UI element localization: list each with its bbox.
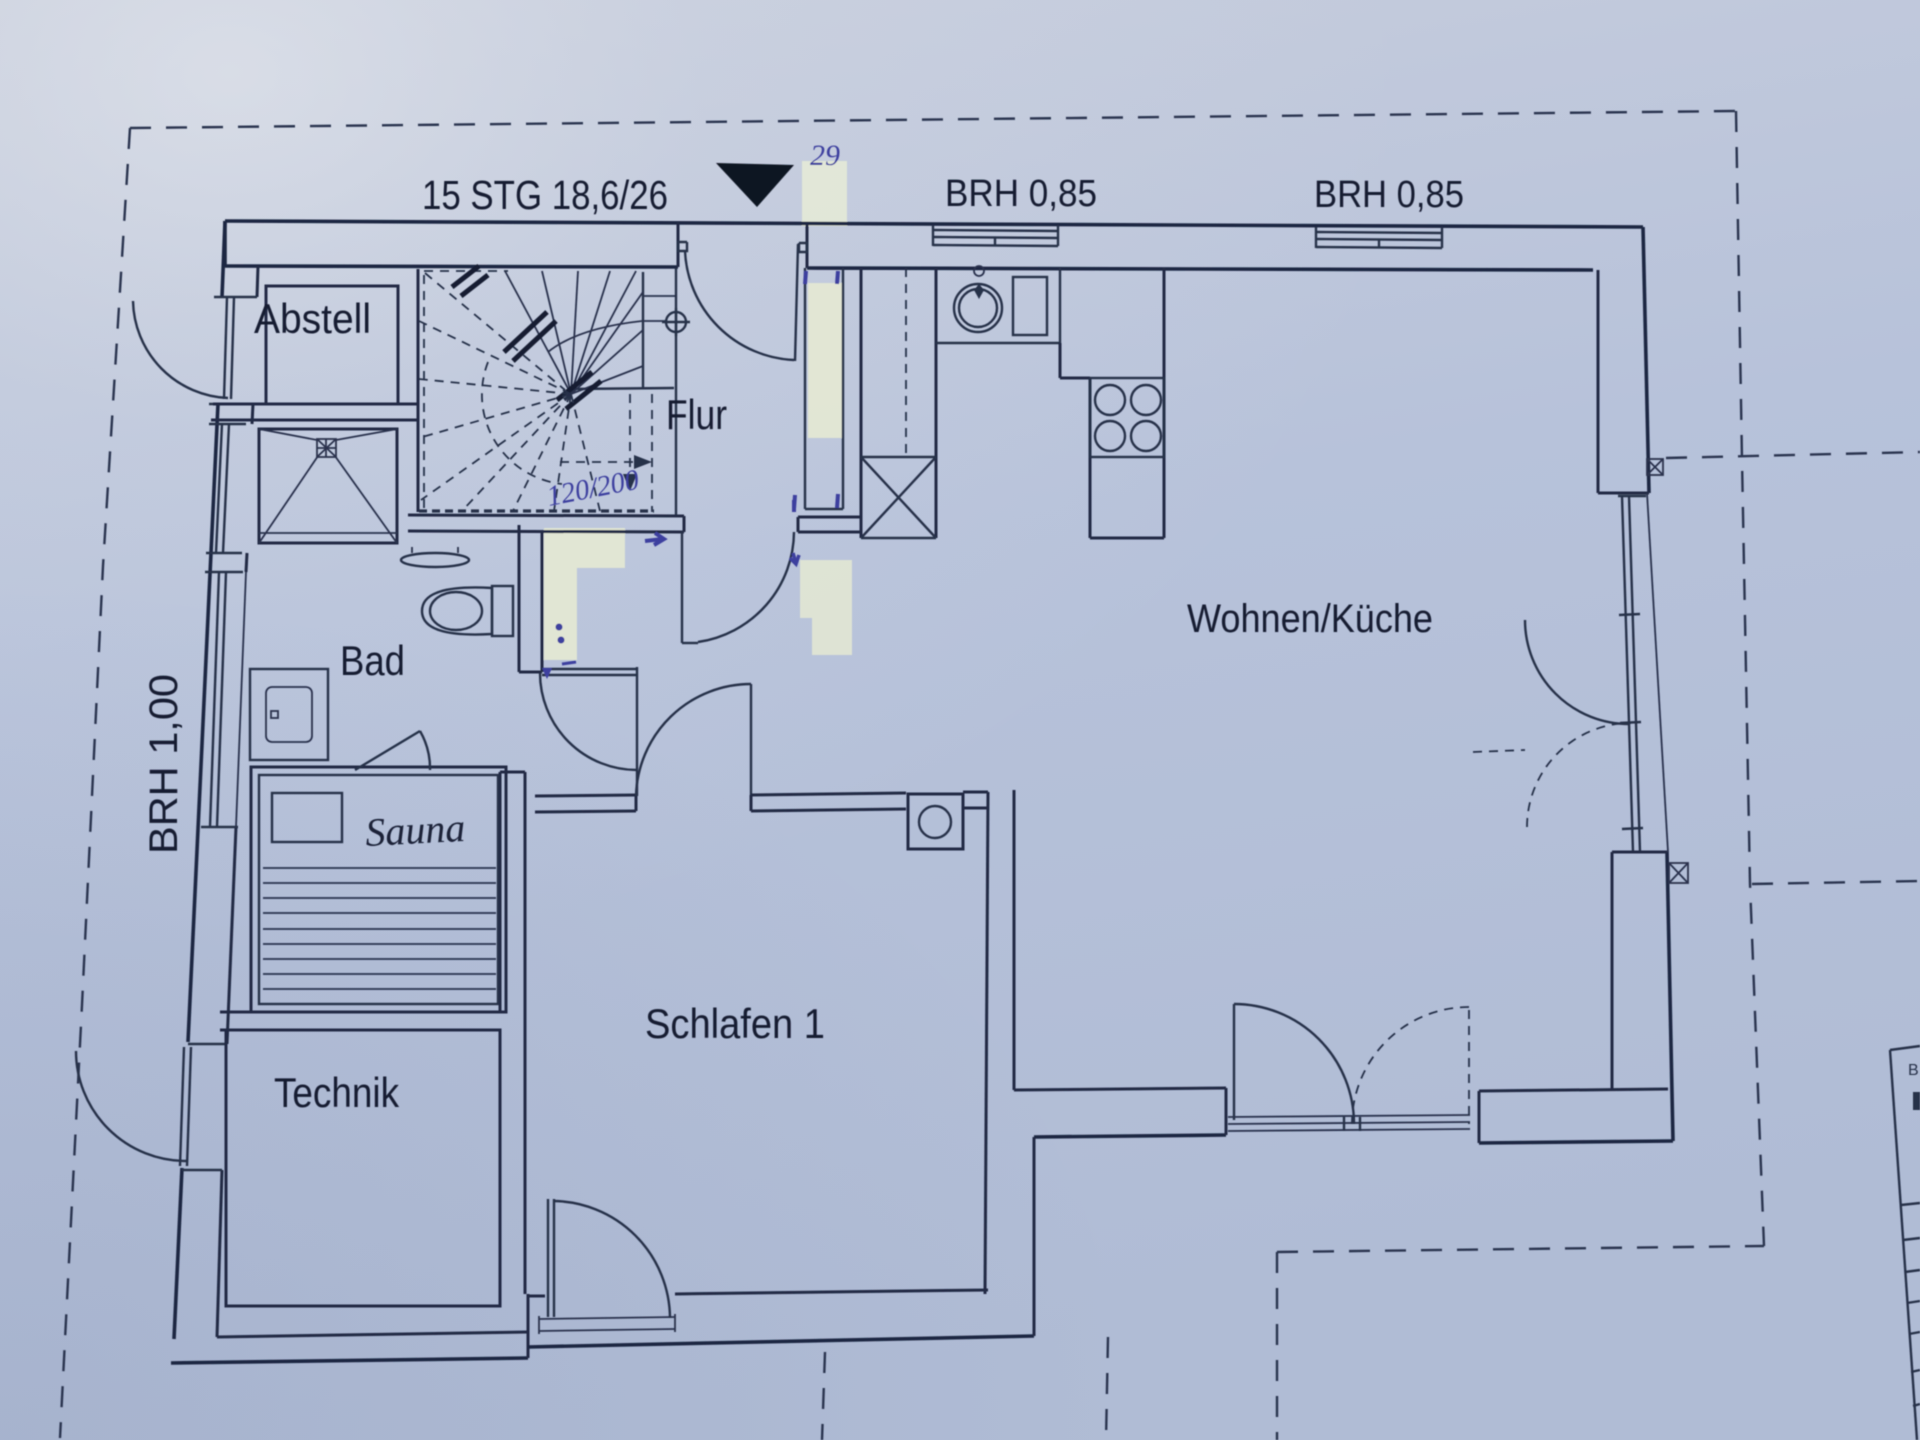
svg-text:BRH 0,85: BRH 0,85 <box>1314 174 1464 216</box>
svg-text:Sauna: Sauna <box>364 805 466 855</box>
svg-text:BRH 1,00: BRH 1,00 <box>142 674 186 854</box>
svg-text:Wohnen/Küche: Wohnen/Küche <box>1187 597 1433 641</box>
svg-text:Bad: Bad <box>340 637 405 684</box>
svg-text:Abstell: Abstell <box>254 295 371 342</box>
svg-text:Flur: Flur <box>666 391 727 438</box>
svg-text:BRH 0,85: BRH 0,85 <box>945 173 1097 215</box>
svg-text:29: 29 <box>810 139 840 172</box>
svg-text:B: B <box>1908 1062 1919 1079</box>
svg-text:15 STG 18,6/26: 15 STG 18,6/26 <box>422 172 668 218</box>
svg-text:Schlafen 1: Schlafen 1 <box>645 1000 825 1047</box>
svg-text:Technik: Technik <box>274 1069 400 1116</box>
